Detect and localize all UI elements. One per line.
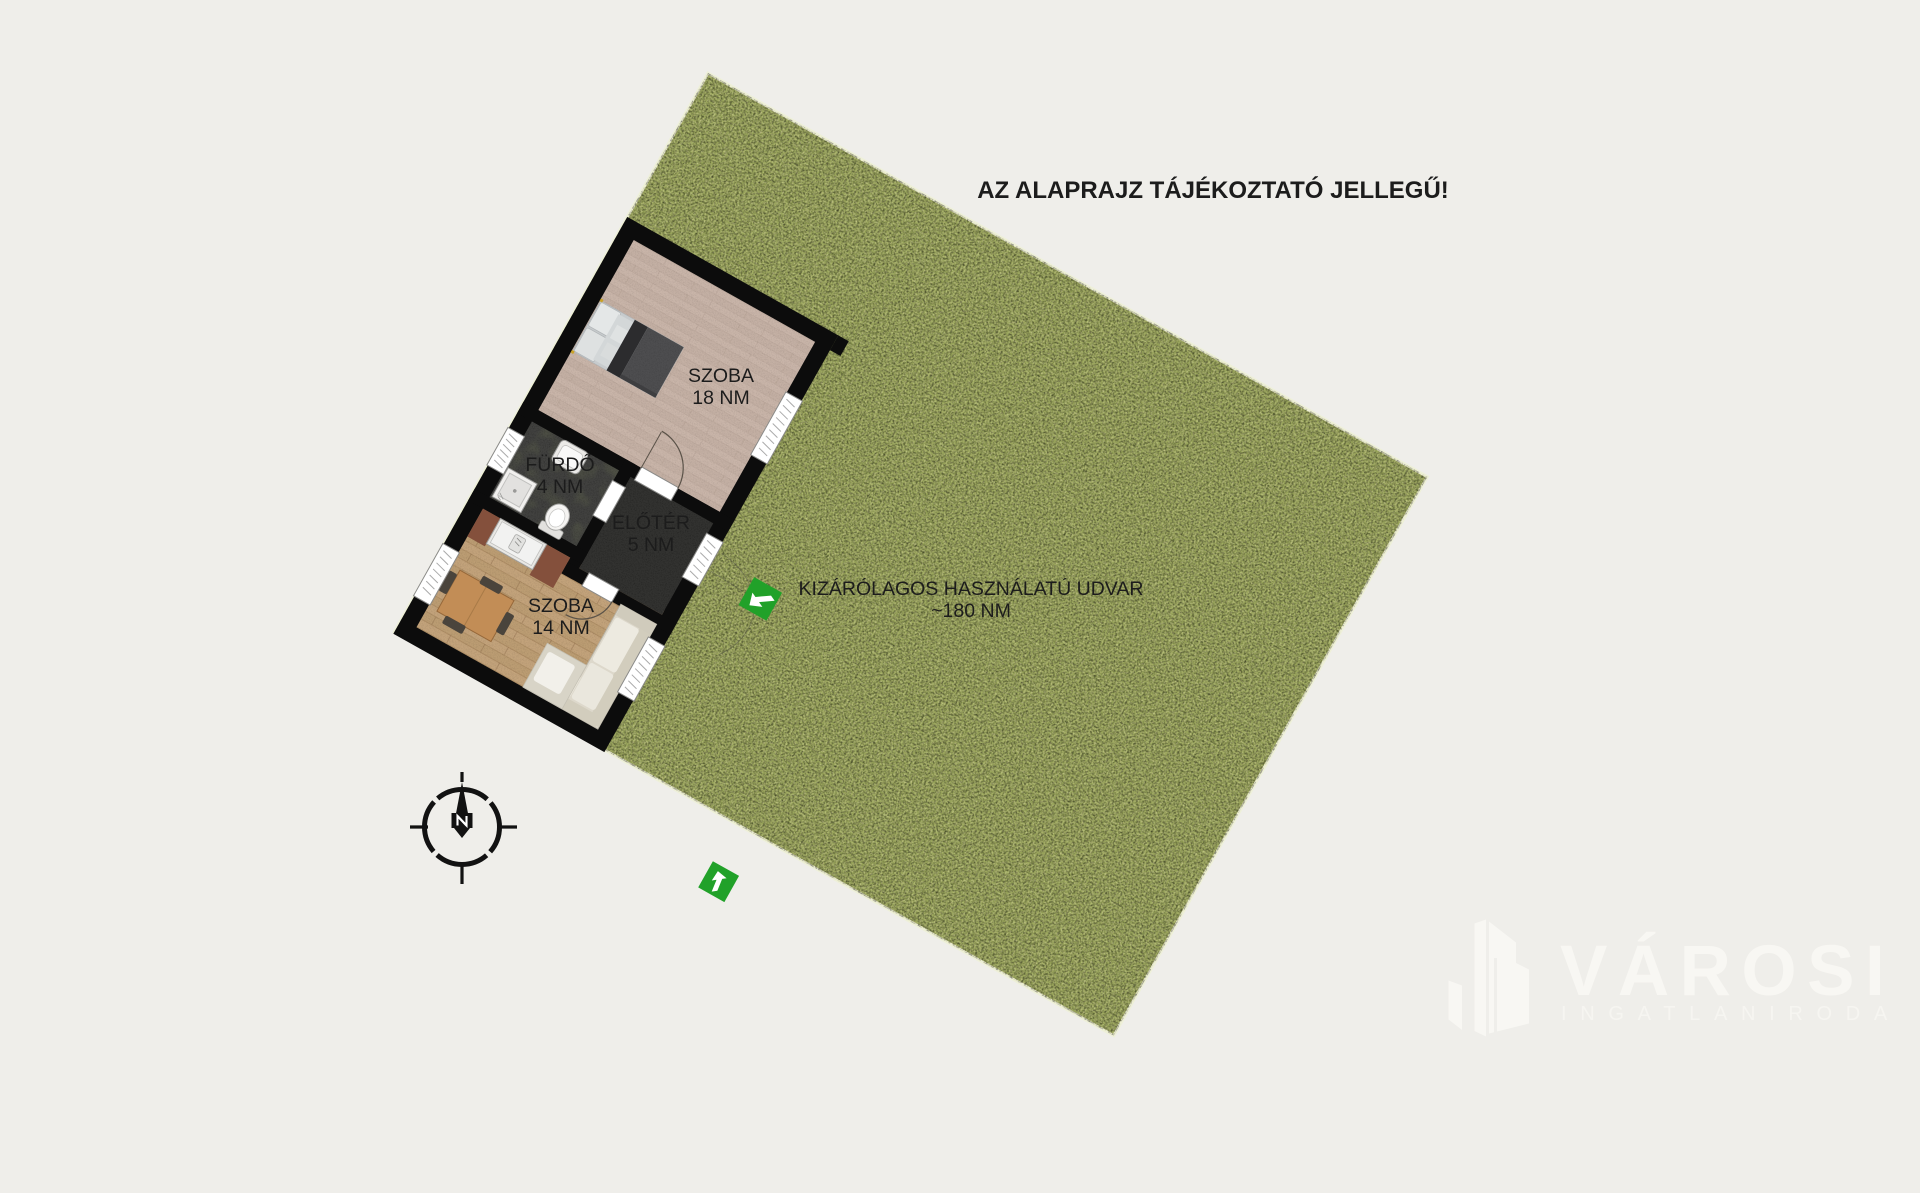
svg-text:INGATLANIRODA: INGATLANIRODA bbox=[1561, 1003, 1901, 1025]
svg-text:VÁROSI: VÁROSI bbox=[1560, 932, 1895, 1011]
